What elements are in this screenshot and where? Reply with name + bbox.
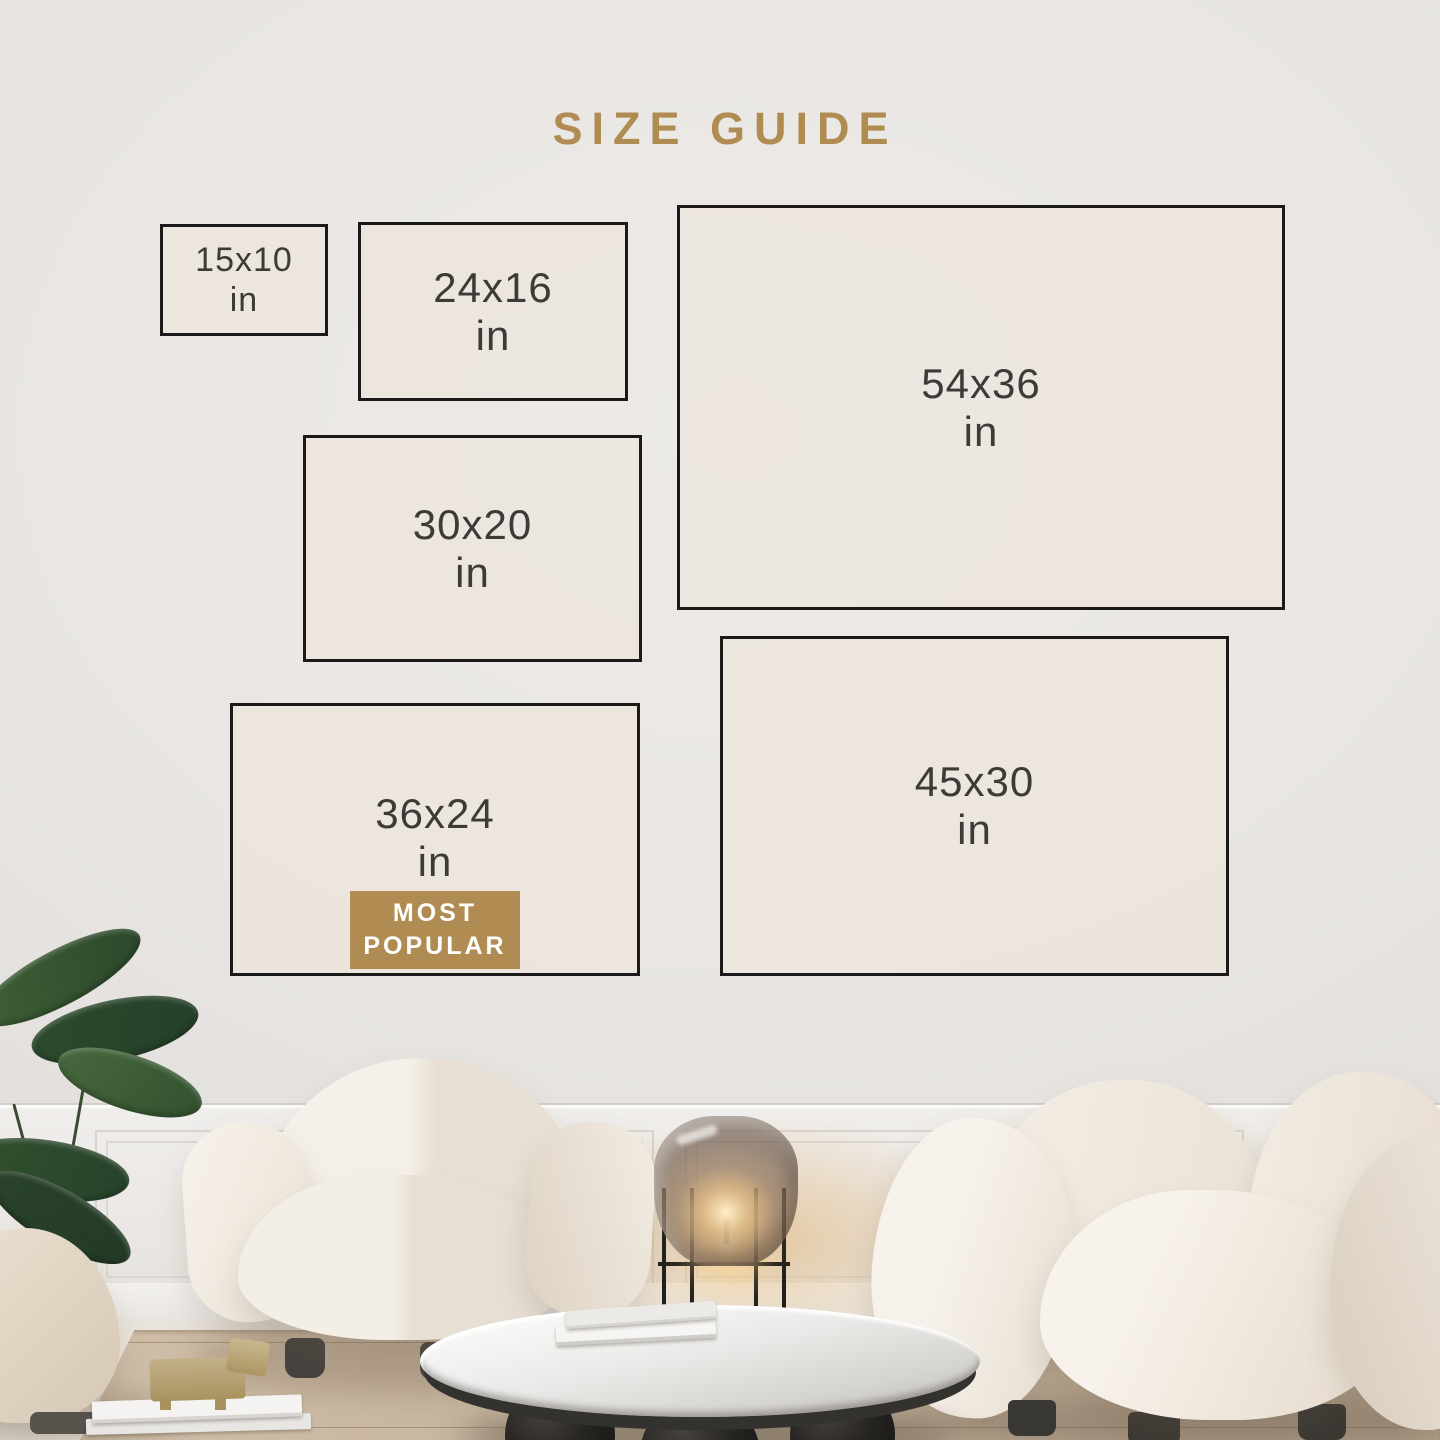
size-dimensions: 15x10 in	[195, 240, 293, 320]
wooden-dog-figurine-leg	[160, 1396, 171, 1410]
size-unit: in	[915, 806, 1034, 854]
size-value: 36x24	[375, 790, 494, 838]
size-dimensions: 24x16 in	[433, 264, 552, 360]
size-value: 30x20	[413, 501, 532, 549]
size-dimensions: 36x24 in	[375, 790, 494, 886]
size-unit: in	[921, 408, 1040, 456]
size-option-45x30: 45x30 in	[720, 636, 1229, 976]
size-unit: in	[195, 280, 293, 320]
size-value: 54x36	[921, 360, 1040, 408]
badge-line: POPULAR	[363, 930, 506, 963]
armchair-arm-right	[521, 1118, 659, 1321]
size-value: 45x30	[915, 758, 1034, 806]
size-dimensions: 30x20 in	[413, 501, 532, 597]
sofa-leg	[1008, 1400, 1056, 1436]
size-unit: in	[433, 312, 552, 360]
size-option-24x16: 24x16 in	[358, 222, 628, 401]
size-option-15x10: 15x10 in	[160, 224, 328, 336]
size-option-30x20: 30x20 in	[303, 435, 642, 662]
size-option-54x36: 54x36 in	[677, 205, 1285, 610]
size-dimensions: 54x36 in	[921, 360, 1040, 456]
wooden-dog-figurine-head	[226, 1337, 270, 1376]
wooden-dog-figurine-leg	[215, 1396, 226, 1410]
size-unit: in	[375, 838, 494, 886]
armchair-leg	[285, 1338, 325, 1378]
size-value: 15x10	[195, 240, 293, 280]
size-guide-mockup: SIZE GUIDE 15x10 in 24x16 in 30x20 in 36…	[0, 0, 1440, 1440]
most-popular-badge: MOST POPULAR	[350, 891, 520, 969]
size-dimensions: 45x30 in	[915, 758, 1034, 854]
page-title: SIZE GUIDE	[0, 103, 1440, 155]
size-unit: in	[413, 549, 532, 597]
size-option-36x24: 36x24 in MOST POPULAR	[230, 703, 640, 976]
badge-line: MOST	[393, 897, 477, 930]
size-value: 24x16	[433, 264, 552, 312]
